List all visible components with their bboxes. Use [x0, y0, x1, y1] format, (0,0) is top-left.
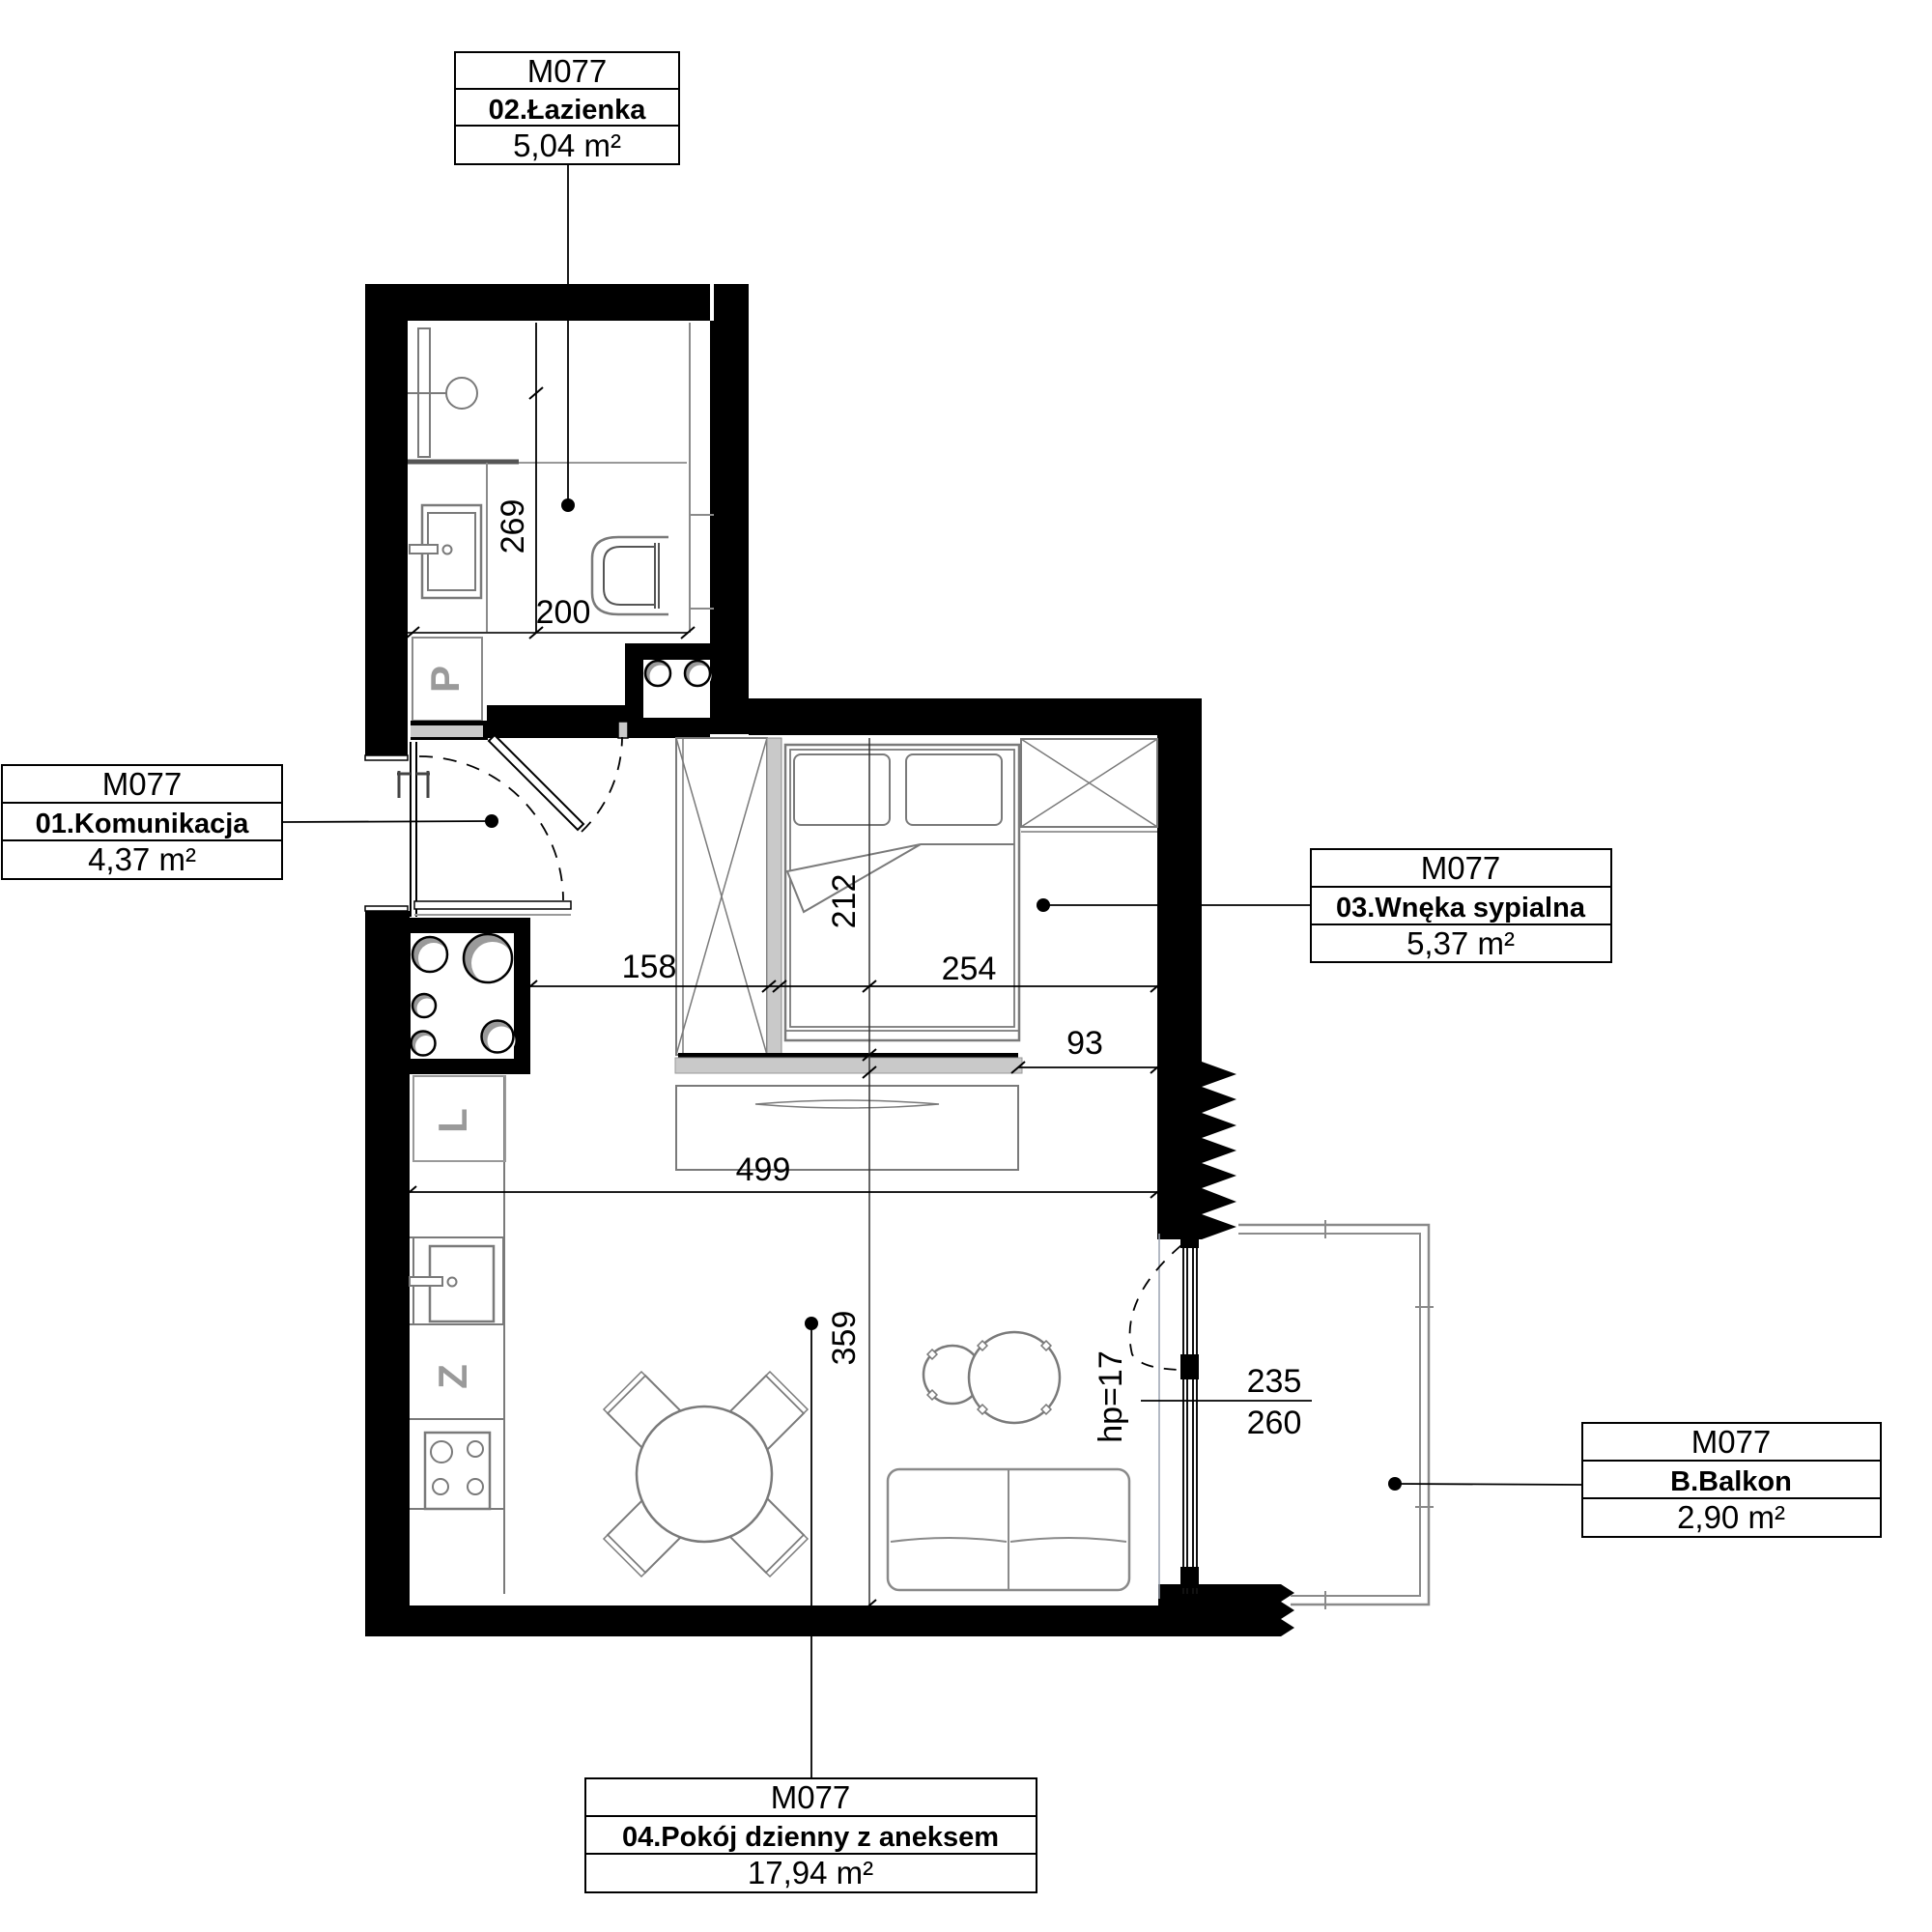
svg-text:235: 235 [1247, 1363, 1302, 1400]
svg-text:M077: M077 [527, 53, 608, 89]
svg-text:93: 93 [1066, 1025, 1103, 1062]
svg-text:M077: M077 [102, 766, 183, 802]
svg-text:02.Łazienka: 02.Łazienka [489, 95, 647, 126]
svg-text:L: L [430, 1108, 475, 1133]
svg-text:04.Pokój dzienny z aneksem: 04.Pokój dzienny z aneksem [622, 1822, 999, 1853]
svg-text:B.Balkon: B.Balkon [1670, 1466, 1792, 1497]
svg-text:212: 212 [826, 874, 863, 929]
svg-text:Z: Z [430, 1364, 475, 1389]
svg-text:M077: M077 [771, 1779, 851, 1815]
svg-text:M077: M077 [1421, 850, 1501, 886]
svg-text:hp=17: hp=17 [1093, 1350, 1129, 1443]
svg-text:260: 260 [1247, 1405, 1302, 1441]
svg-text:254: 254 [942, 951, 997, 987]
svg-text:P: P [422, 666, 468, 693]
svg-text:M077: M077 [1691, 1424, 1772, 1460]
svg-text:5,37 m²: 5,37 m² [1406, 925, 1515, 961]
svg-text:01.Komunikacja: 01.Komunikacja [36, 809, 250, 839]
svg-text:359: 359 [826, 1311, 863, 1366]
svg-text:03.Wnęka sypialna: 03.Wnęka sypialna [1336, 893, 1586, 923]
svg-text:499: 499 [736, 1151, 791, 1188]
svg-text:158: 158 [622, 949, 677, 985]
svg-text:200: 200 [536, 594, 591, 631]
svg-text:5,04 m²: 5,04 m² [513, 128, 621, 163]
svg-text:4,37 m²: 4,37 m² [88, 841, 196, 877]
svg-text:2,90 m²: 2,90 m² [1677, 1499, 1785, 1535]
svg-text:269: 269 [495, 499, 531, 554]
svg-text:17,94 m²: 17,94 m² [748, 1855, 873, 1890]
